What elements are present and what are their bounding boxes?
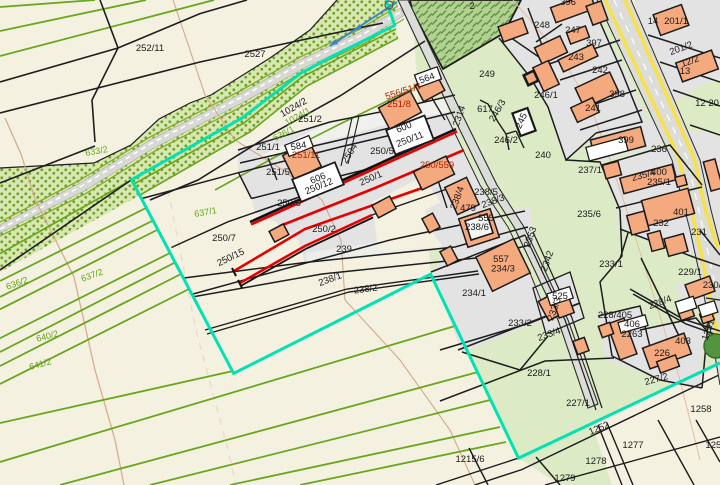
svg-text:235/6: 235/6: [577, 209, 601, 220]
svg-text:1215/6: 1215/6: [455, 454, 484, 465]
svg-text:251/11: 251/11: [292, 150, 320, 161]
svg-text:234/3: 234/3: [491, 264, 515, 275]
svg-text:12 20: 12 20: [695, 98, 719, 109]
svg-text:246/2: 246/2: [494, 135, 518, 146]
svg-text:479: 479: [460, 203, 476, 214]
svg-text:230/: 230/: [703, 280, 720, 291]
svg-text:243: 243: [568, 52, 584, 63]
svg-text:232: 232: [653, 218, 669, 229]
svg-text:396: 396: [560, 0, 576, 8]
svg-text:399: 399: [618, 135, 634, 146]
svg-text:247: 247: [565, 25, 581, 36]
svg-text:248: 248: [534, 20, 550, 31]
svg-text:401: 401: [673, 207, 689, 218]
svg-text:1255: 1255: [705, 440, 720, 451]
svg-text:397: 397: [586, 38, 602, 49]
svg-text:250/559: 250/559: [420, 160, 454, 171]
svg-text:2: 2: [469, 1, 474, 12]
svg-text:241: 241: [585, 103, 601, 114]
svg-text:1279: 1279: [554, 473, 575, 484]
svg-text:242: 242: [592, 65, 608, 76]
svg-text:233/2: 233/2: [508, 318, 532, 329]
svg-text:228/405: 228/405: [598, 310, 632, 321]
svg-text:251/5: 251/5: [266, 167, 290, 178]
svg-text:234/1: 234/1: [462, 288, 486, 299]
svg-text:231: 231: [691, 227, 707, 238]
svg-text:250/6: 250/6: [277, 198, 301, 209]
svg-text:14: 14: [648, 16, 659, 27]
svg-text:1258: 1258: [690, 404, 711, 415]
svg-text:250/5: 250/5: [370, 146, 394, 157]
svg-text:250/7: 250/7: [212, 233, 236, 244]
svg-text:227/1: 227/1: [566, 398, 590, 409]
svg-text:403: 403: [675, 336, 691, 347]
svg-text:236: 236: [651, 144, 667, 155]
svg-text:13: 13: [680, 66, 691, 77]
svg-text:237/1: 237/1: [578, 165, 602, 176]
svg-text:240: 240: [535, 150, 551, 161]
svg-text:250/2: 250/2: [312, 224, 336, 235]
svg-text:239: 239: [336, 244, 352, 255]
svg-text:226: 226: [654, 348, 670, 359]
svg-text:249: 249: [479, 69, 495, 80]
svg-text:235/1: 235/1: [647, 177, 671, 188]
svg-text:2263: 2263: [621, 329, 642, 340]
svg-text:1278: 1278: [585, 456, 606, 467]
svg-text:2527: 2527: [244, 49, 265, 60]
svg-text:201/1: 201/1: [664, 16, 688, 27]
svg-text:251/1: 251/1: [256, 142, 280, 153]
svg-text:398: 398: [609, 89, 625, 100]
svg-text:252/11: 252/11: [136, 43, 164, 54]
svg-text:228/1: 228/1: [527, 368, 551, 379]
svg-text:229/1: 229/1: [678, 267, 702, 278]
svg-text:1277: 1277: [622, 440, 643, 451]
svg-text:246/1: 246/1: [534, 90, 558, 101]
svg-text:238/6: 238/6: [465, 222, 489, 233]
svg-text:233/1: 233/1: [599, 259, 623, 270]
